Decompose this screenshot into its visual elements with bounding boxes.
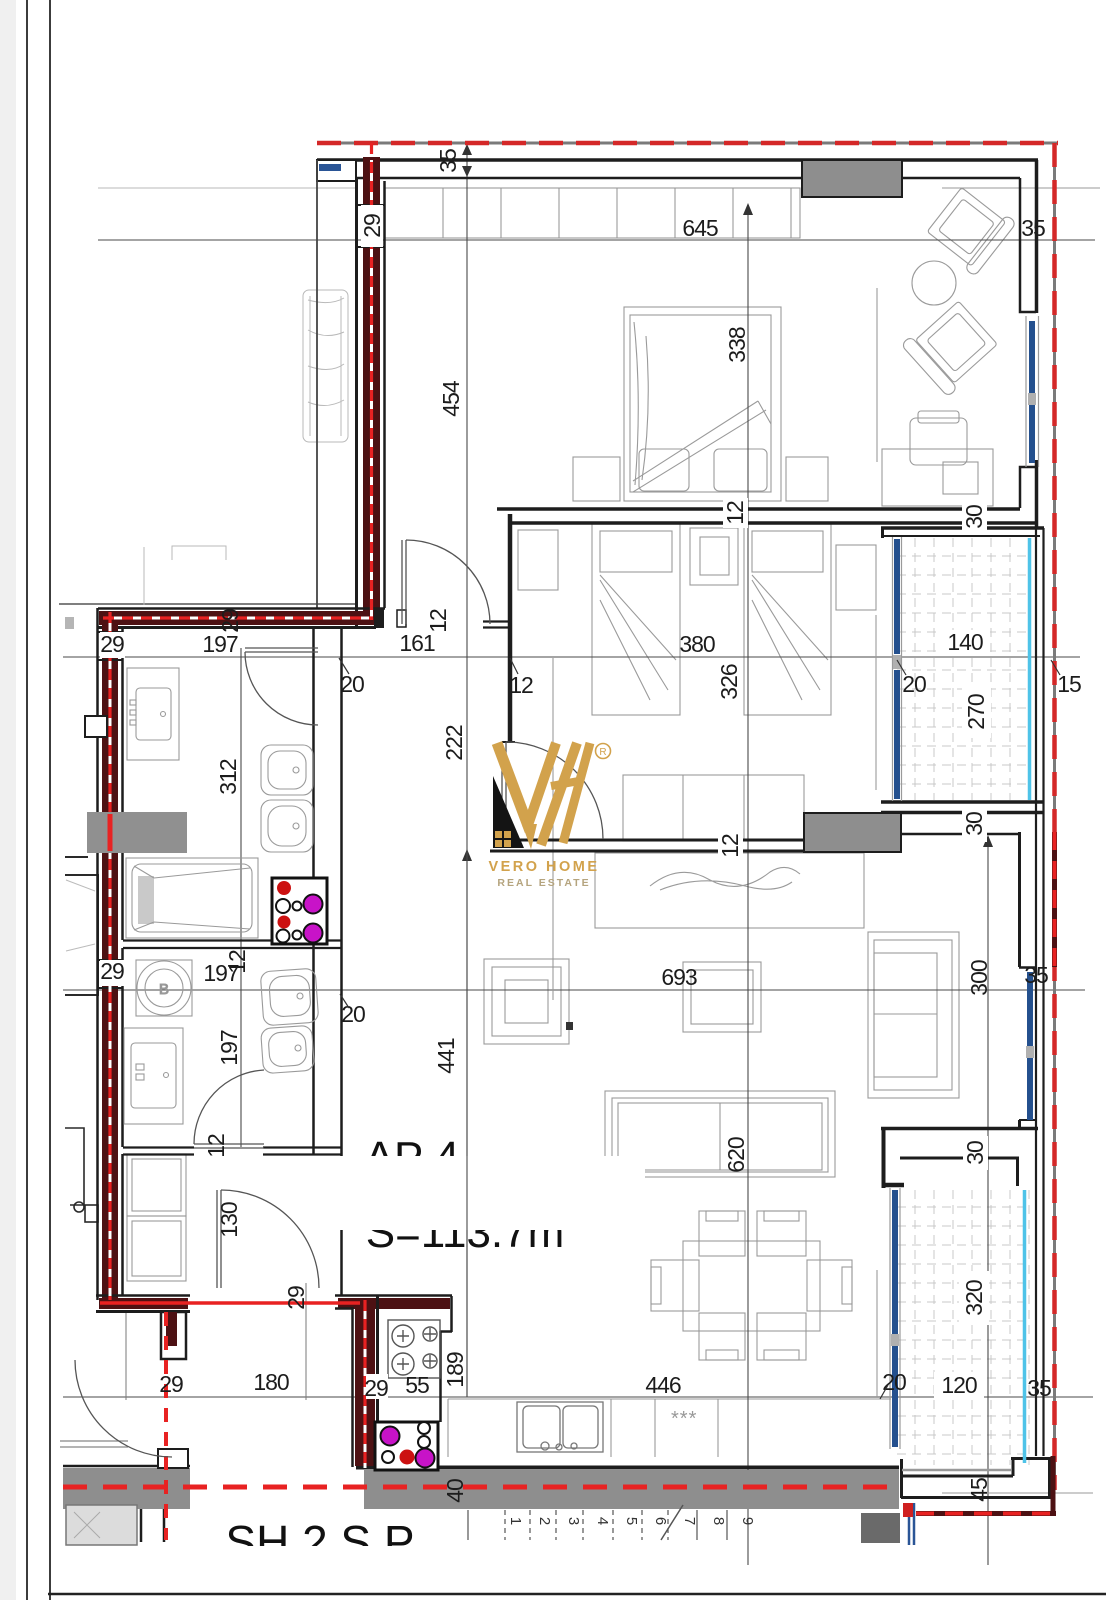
svg-text:R: R	[599, 747, 606, 758]
svg-text:380: 380	[679, 631, 715, 657]
svg-text:161: 161	[399, 630, 435, 656]
svg-text:3: 3	[565, 1517, 582, 1525]
svg-text:20: 20	[882, 1369, 906, 1395]
svg-text:***: ***	[671, 1408, 697, 1430]
svg-text:189: 189	[442, 1352, 468, 1388]
svg-text:VERO HOME: VERO HOME	[488, 859, 599, 875]
svg-text:30: 30	[961, 505, 987, 529]
svg-text:40: 40	[442, 1479, 468, 1503]
svg-text:1: 1	[507, 1517, 524, 1525]
svg-text:20: 20	[340, 671, 364, 697]
svg-text:35: 35	[1027, 1375, 1051, 1401]
svg-text:441: 441	[433, 1038, 459, 1074]
svg-text:29: 29	[159, 1371, 183, 1397]
svg-text:B: B	[159, 981, 169, 998]
svg-text:320: 320	[961, 1280, 987, 1316]
svg-text:645: 645	[682, 215, 718, 241]
svg-text:29: 29	[359, 214, 385, 238]
svg-text:180: 180	[253, 1369, 289, 1395]
svg-text:12: 12	[425, 609, 451, 633]
svg-text:45: 45	[966, 1478, 992, 1502]
svg-text:620: 620	[723, 1137, 749, 1173]
svg-text:29: 29	[217, 609, 243, 633]
svg-text:12: 12	[722, 501, 748, 525]
svg-text:197: 197	[216, 1030, 242, 1066]
svg-text:7: 7	[681, 1517, 698, 1525]
svg-text:8: 8	[710, 1517, 727, 1525]
svg-text:12: 12	[717, 834, 743, 858]
svg-text:15: 15	[1057, 671, 1081, 697]
svg-text:30: 30	[962, 1141, 988, 1165]
svg-text:4: 4	[594, 1517, 611, 1525]
svg-text:29: 29	[100, 631, 124, 657]
svg-text:197: 197	[202, 631, 238, 657]
svg-text:12: 12	[509, 672, 533, 698]
svg-text:312: 312	[215, 759, 241, 795]
svg-text:130: 130	[216, 1202, 242, 1238]
svg-text:140: 140	[947, 629, 983, 655]
svg-text:338: 338	[724, 327, 750, 363]
svg-text:693: 693	[661, 964, 697, 990]
svg-text:12: 12	[203, 1134, 229, 1158]
svg-text:9: 9	[739, 1517, 756, 1525]
svg-text:29: 29	[364, 1375, 388, 1401]
svg-text:300: 300	[966, 960, 992, 996]
svg-text:326: 326	[716, 664, 742, 700]
svg-text:270: 270	[963, 694, 989, 730]
svg-text:29: 29	[283, 1286, 309, 1310]
svg-text:222: 222	[441, 725, 467, 761]
svg-text:2: 2	[536, 1517, 553, 1525]
svg-text:20: 20	[341, 1001, 365, 1027]
svg-text:120: 120	[941, 1372, 977, 1398]
svg-text:REAL ESTATE: REAL ESTATE	[497, 877, 590, 889]
svg-text:35: 35	[435, 149, 461, 173]
svg-text:446: 446	[645, 1372, 681, 1398]
svg-text:5: 5	[623, 1517, 640, 1525]
svg-text:454: 454	[438, 380, 464, 417]
svg-text:29: 29	[100, 958, 124, 984]
svg-text:35: 35	[1021, 215, 1045, 241]
svg-text:35: 35	[1024, 962, 1048, 988]
svg-text:55: 55	[405, 1372, 429, 1398]
svg-text:30: 30	[961, 812, 987, 836]
svg-text:6: 6	[652, 1517, 669, 1525]
svg-text:12: 12	[224, 950, 250, 974]
